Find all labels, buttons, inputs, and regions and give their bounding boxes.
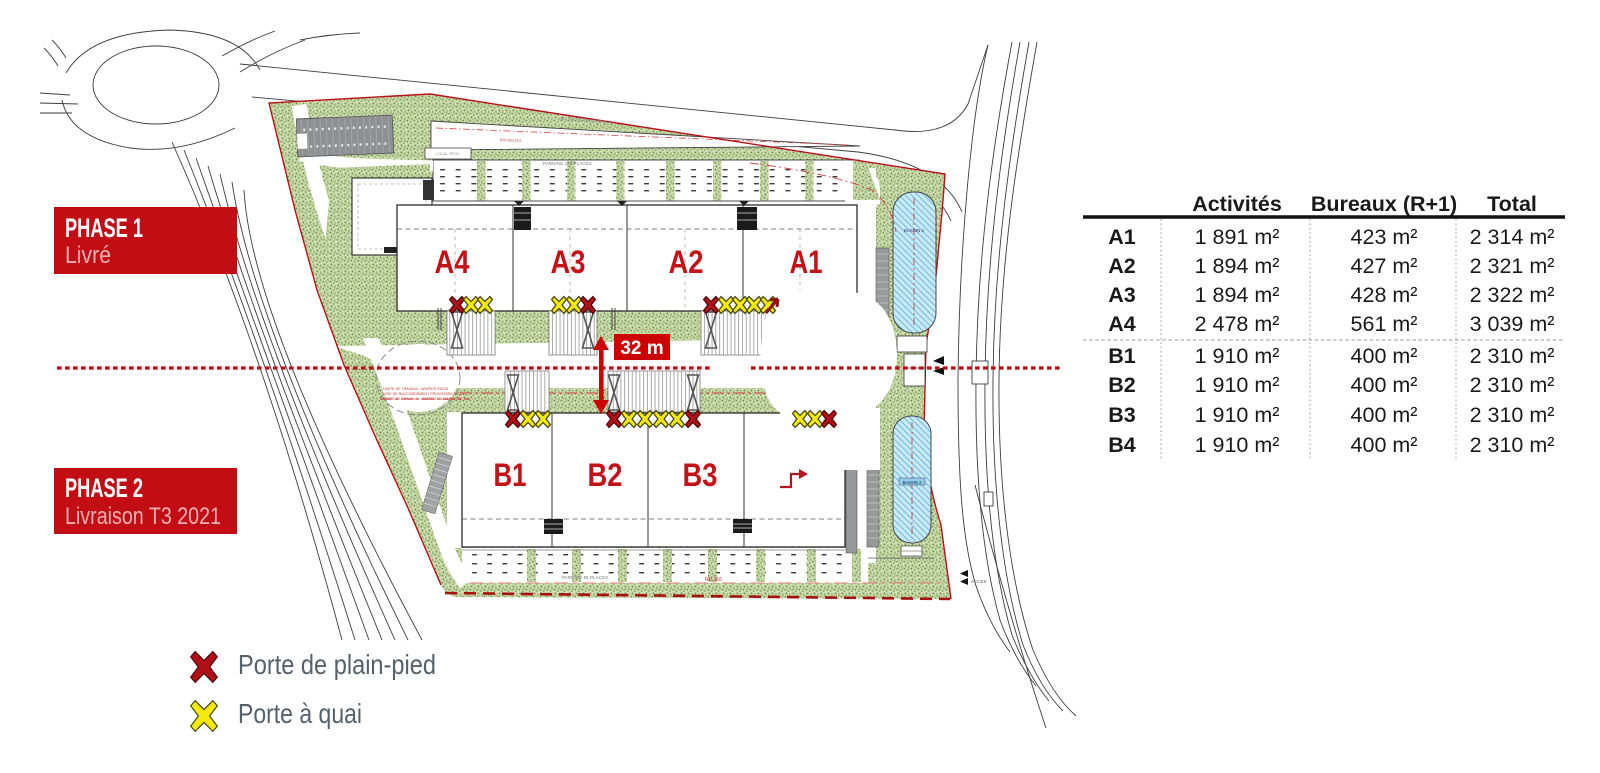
svg-text:2 310 m²: 2 310 m² xyxy=(1470,433,1555,457)
svg-text:B3: B3 xyxy=(683,457,718,493)
svg-text:3 039 m²: 3 039 m² xyxy=(1470,312,1555,336)
svg-text:B1: B1 xyxy=(494,457,527,493)
svg-text:2 478 m²: 2 478 m² xyxy=(1195,312,1280,336)
svg-text:A3: A3 xyxy=(551,244,586,280)
svg-text:VOIE DE RACCORDEMENT PROVISOIR: VOIE DE RACCORDEMENT PROVISOIRE RD216 xyxy=(383,392,465,396)
svg-text:Porte à quai: Porte à quai xyxy=(238,698,362,729)
svg-text:A1: A1 xyxy=(1108,225,1136,249)
svg-text:Total: Total xyxy=(1487,192,1537,216)
svg-text:2 310 m²: 2 310 m² xyxy=(1470,344,1555,368)
svg-text:2 310 m²: 2 310 m² xyxy=(1470,373,1555,397)
svg-text:2 322 m²: 2 322 m² xyxy=(1470,283,1555,307)
svg-text:Activités: Activités xyxy=(1192,192,1282,216)
svg-text:A2: A2 xyxy=(669,244,704,280)
svg-text:427 m²: 427 m² xyxy=(1351,254,1418,278)
svg-text:ACCES: ACCES xyxy=(971,579,987,584)
svg-text:BASSIN 1: BASSIN 1 xyxy=(904,228,925,233)
svg-text:400 m²: 400 m² xyxy=(1351,373,1418,397)
svg-text:2 314 m²: 2 314 m² xyxy=(1470,225,1555,249)
svg-text:B4: B4 xyxy=(1108,433,1136,457)
svg-text:400 m²: 400 m² xyxy=(1351,344,1418,368)
svg-text:1 910 m²: 1 910 m² xyxy=(1195,373,1280,397)
svg-text:1 894 m²: 1 894 m² xyxy=(1195,254,1280,278)
svg-text:LIMITE DE TRAVAUX - ABORDS RD2: LIMITE DE TRAVAUX - ABORDS RD216 xyxy=(383,387,448,391)
svg-text:Livré: Livré xyxy=(65,242,111,269)
svg-text:B2: B2 xyxy=(1108,373,1136,397)
svg-text:RD 216: RD 216 xyxy=(705,577,722,583)
svg-text:A2: A2 xyxy=(1108,254,1136,278)
svg-text:1 910 m²: 1 910 m² xyxy=(1195,403,1280,427)
svg-text:Porte de plain-pied: Porte de plain-pied xyxy=(238,649,436,680)
svg-text:1 910 m²: 1 910 m² xyxy=(1195,344,1280,368)
svg-text:A4: A4 xyxy=(435,244,470,280)
svg-text:561 m²: 561 m² xyxy=(1351,312,1418,336)
svg-text:32 m: 32 m xyxy=(620,338,663,359)
svg-text:1 891 m²: 1 891 m² xyxy=(1195,225,1280,249)
svg-text:B3: B3 xyxy=(1108,403,1136,427)
svg-text:400 m²: 400 m² xyxy=(1351,433,1418,457)
svg-text:A3: A3 xyxy=(1108,283,1136,307)
svg-text:428 m²: 428 m² xyxy=(1351,283,1418,307)
svg-text:B2: B2 xyxy=(588,457,623,493)
svg-text:2 310 m²: 2 310 m² xyxy=(1470,403,1555,427)
svg-text:423 m²: 423 m² xyxy=(1351,225,1418,249)
svg-text:BASSIN 2: BASSIN 2 xyxy=(903,480,923,485)
svg-text:B1: B1 xyxy=(1108,344,1136,368)
svg-text:2 321 m²: 2 321 m² xyxy=(1470,254,1555,278)
svg-text:A1: A1 xyxy=(790,244,823,280)
svg-text:1 894 m²: 1 894 m² xyxy=(1195,283,1280,307)
svg-text:400 m²: 400 m² xyxy=(1351,403,1418,427)
svg-text:Bureaux (R+1): Bureaux (R+1) xyxy=(1311,192,1457,216)
svg-text:1 910 m²: 1 910 m² xyxy=(1195,433,1280,457)
svg-text:LOCAL TECH.: LOCAL TECH. xyxy=(436,152,459,156)
svg-text:A4: A4 xyxy=(1108,312,1136,336)
svg-text:Livraison T3 2021: Livraison T3 2021 xyxy=(65,503,221,530)
svg-text:PHASE 1: PHASE 1 xyxy=(65,213,143,243)
svg-text:PARKING 55 PLACES: PARKING 55 PLACES xyxy=(562,575,608,580)
svg-text:PARKING 128 PLACES: PARKING 128 PLACES xyxy=(543,161,592,166)
svg-text:PHASE 2: PHASE 2 xyxy=(65,473,143,503)
